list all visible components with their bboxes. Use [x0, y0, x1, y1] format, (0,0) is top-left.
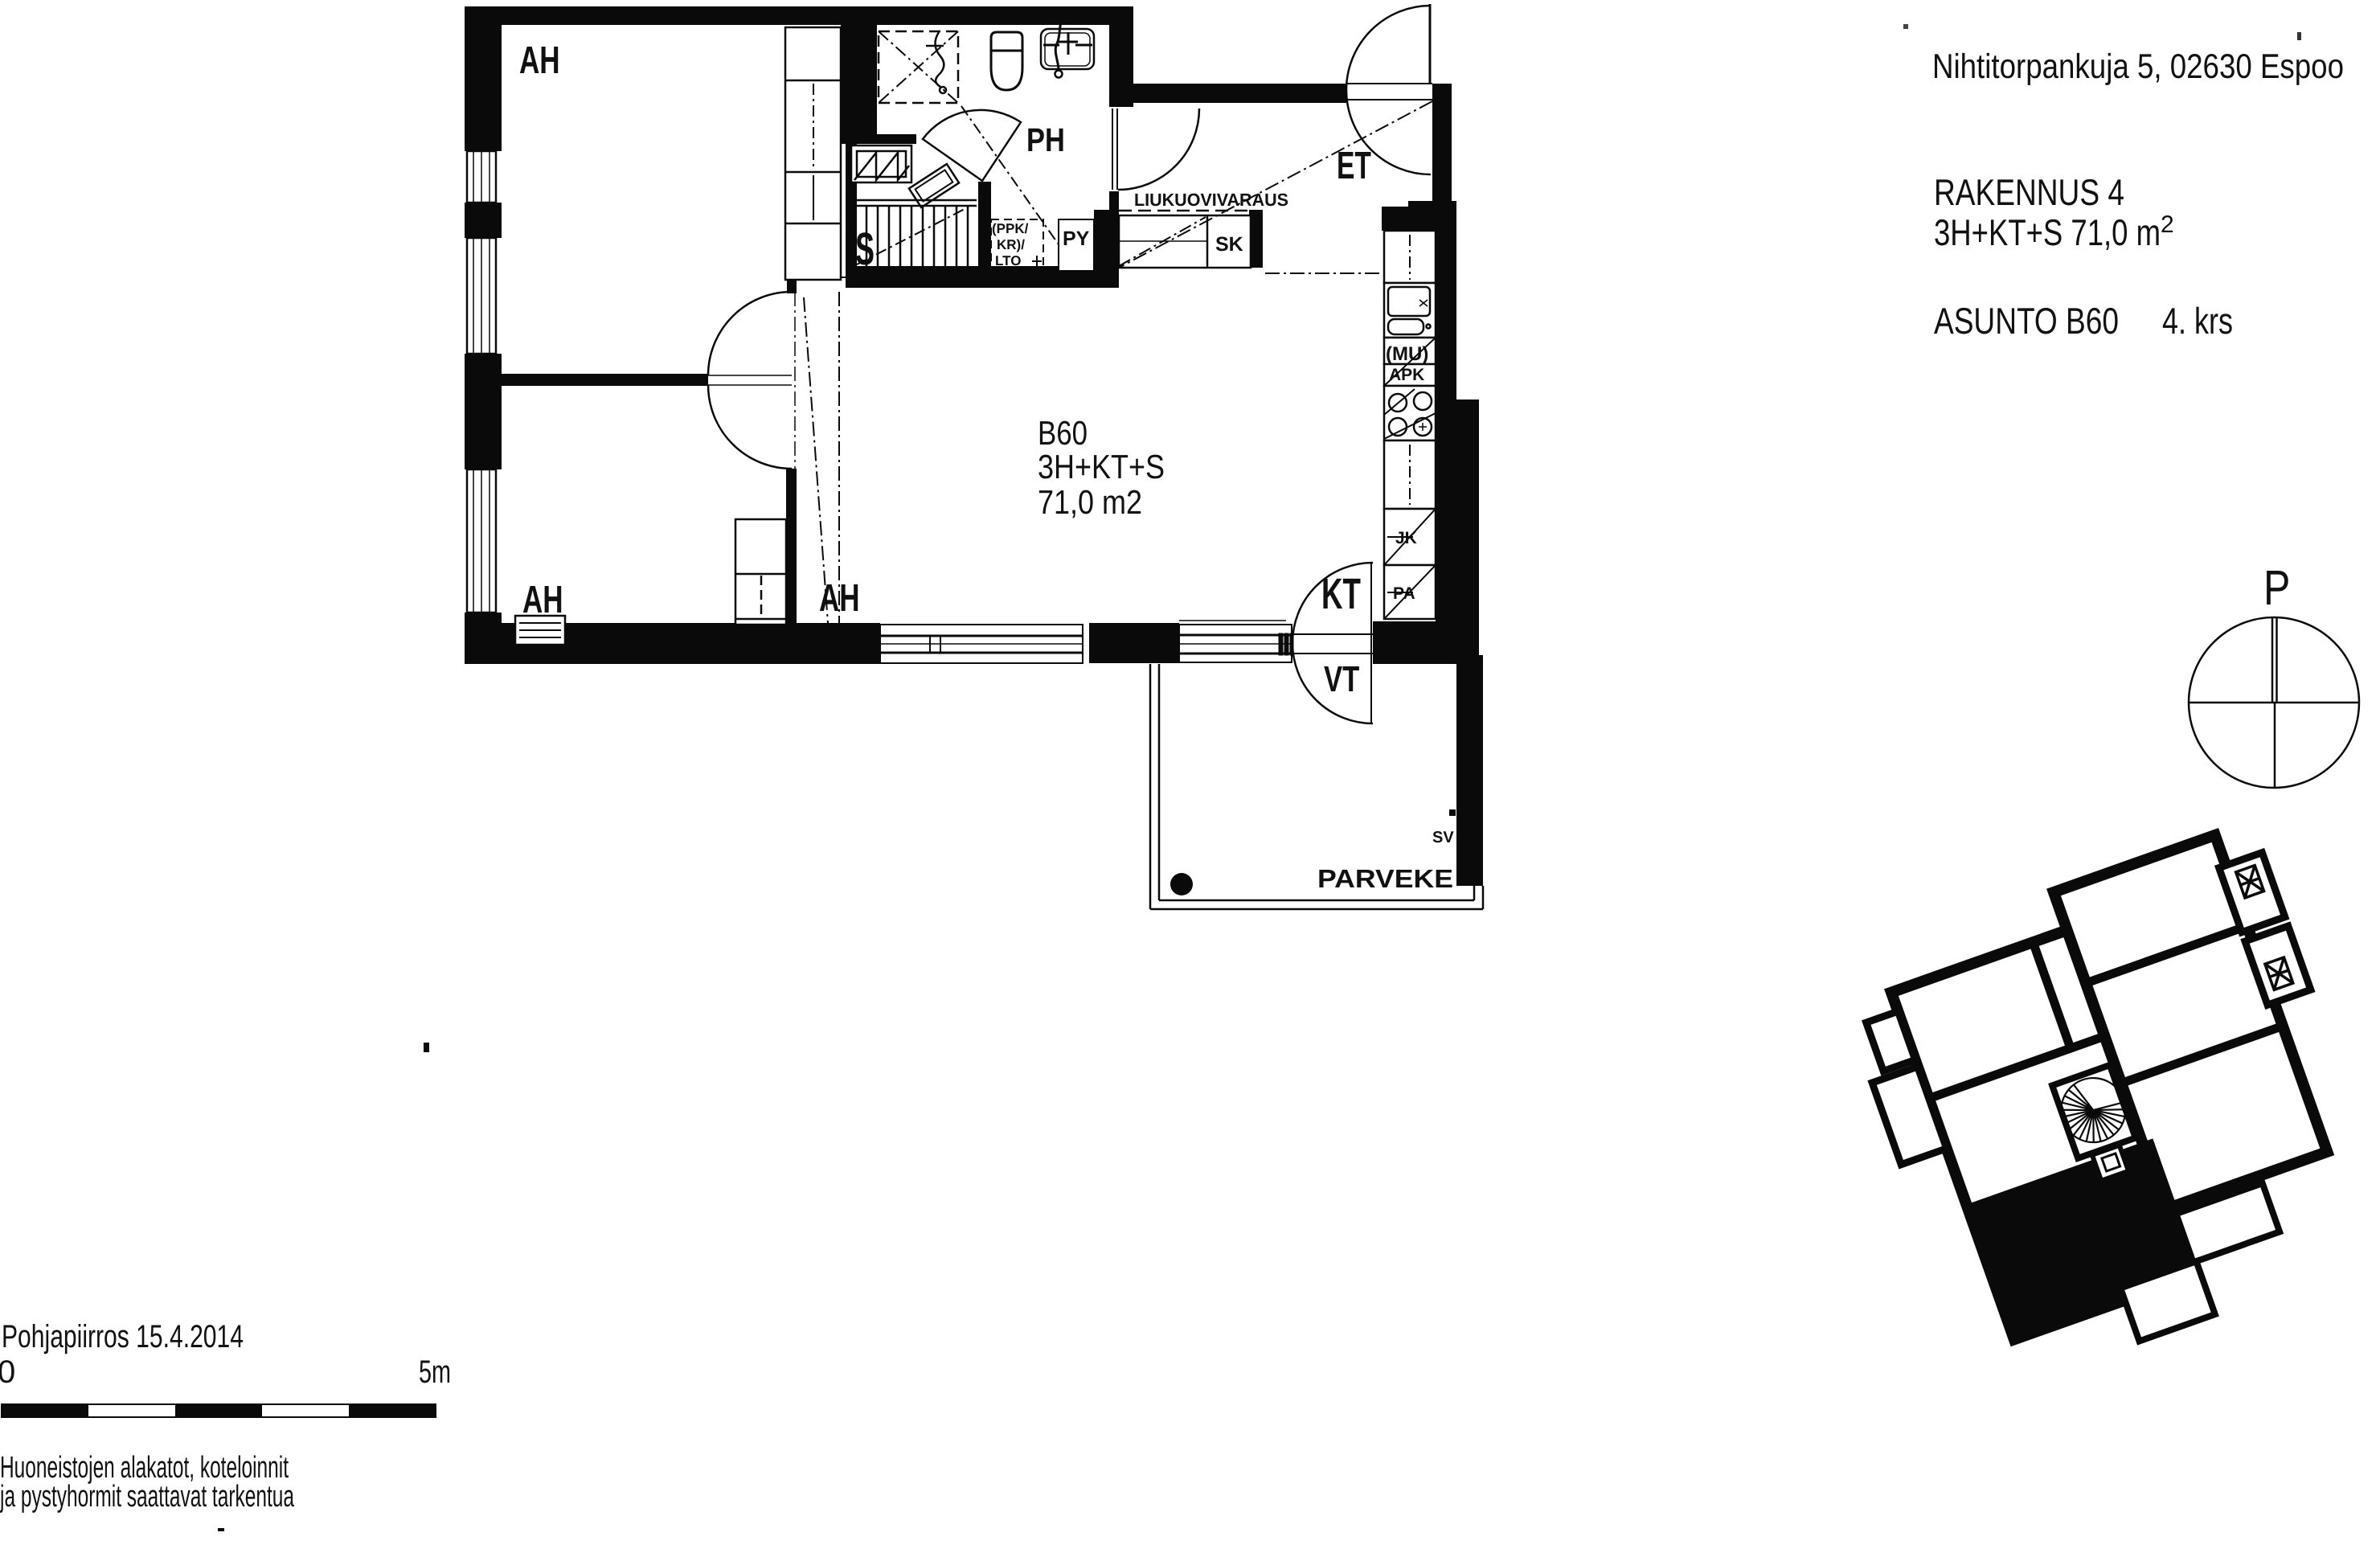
- svg-text:B60: B60: [1038, 414, 1088, 452]
- svg-text:ET: ET: [1337, 145, 1371, 187]
- svg-text:VT: VT: [1324, 658, 1359, 699]
- svg-text:3H+KT+S 71,0 m2: 3H+KT+S 71,0 m2: [1934, 211, 2174, 253]
- svg-text:JK: JK: [1395, 529, 1417, 547]
- svg-text:KT: KT: [1321, 570, 1361, 618]
- svg-text:AH: AH: [522, 579, 563, 621]
- svg-text:(MU): (MU): [1386, 343, 1428, 365]
- svg-text:Pohjapiirros 15.4.2014: Pohjapiirros 15.4.2014: [2, 1319, 244, 1354]
- svg-text:PY: PY: [1063, 227, 1090, 250]
- svg-text:0: 0: [0, 1354, 15, 1390]
- svg-text:P: P: [2263, 560, 2290, 615]
- svg-text:LTO: LTO: [995, 253, 1021, 268]
- svg-text:5m: 5m: [419, 1354, 451, 1390]
- svg-text:ASUNTO B604. krs: ASUNTO B604. krs: [1934, 300, 2233, 342]
- svg-text:PARVEKE: PARVEKE: [1317, 864, 1453, 893]
- svg-text:PA: PA: [1393, 584, 1415, 603]
- svg-text:S: S: [855, 223, 875, 275]
- svg-text:SV: SV: [1432, 829, 1454, 846]
- svg-text:(PPK/: (PPK/: [992, 221, 1029, 236]
- svg-text:AH: AH: [519, 39, 560, 82]
- svg-text:SK: SK: [1215, 233, 1243, 256]
- svg-text:Nihtitorpankuja 5, 02630 Espoo: Nihtitorpankuja 5, 02630 Espoo: [1932, 47, 2344, 86]
- svg-text:71,0 m2: 71,0 m2: [1038, 483, 1142, 521]
- svg-text:ja pystyhormit saattavat tarke: ja pystyhormit saattavat tarkentua: [0, 1480, 295, 1514]
- svg-text:PH: PH: [1026, 121, 1065, 158]
- svg-text:3H+KT+S: 3H+KT+S: [1038, 448, 1165, 486]
- svg-text:LIUKUOVIVARAUS: LIUKUOVIVARAUS: [1134, 190, 1288, 210]
- svg-text:KR)/: KR)/: [997, 237, 1025, 252]
- svg-text:APK: APK: [1389, 366, 1424, 384]
- svg-text:RAKENNUS 4: RAKENNUS 4: [1934, 171, 2124, 213]
